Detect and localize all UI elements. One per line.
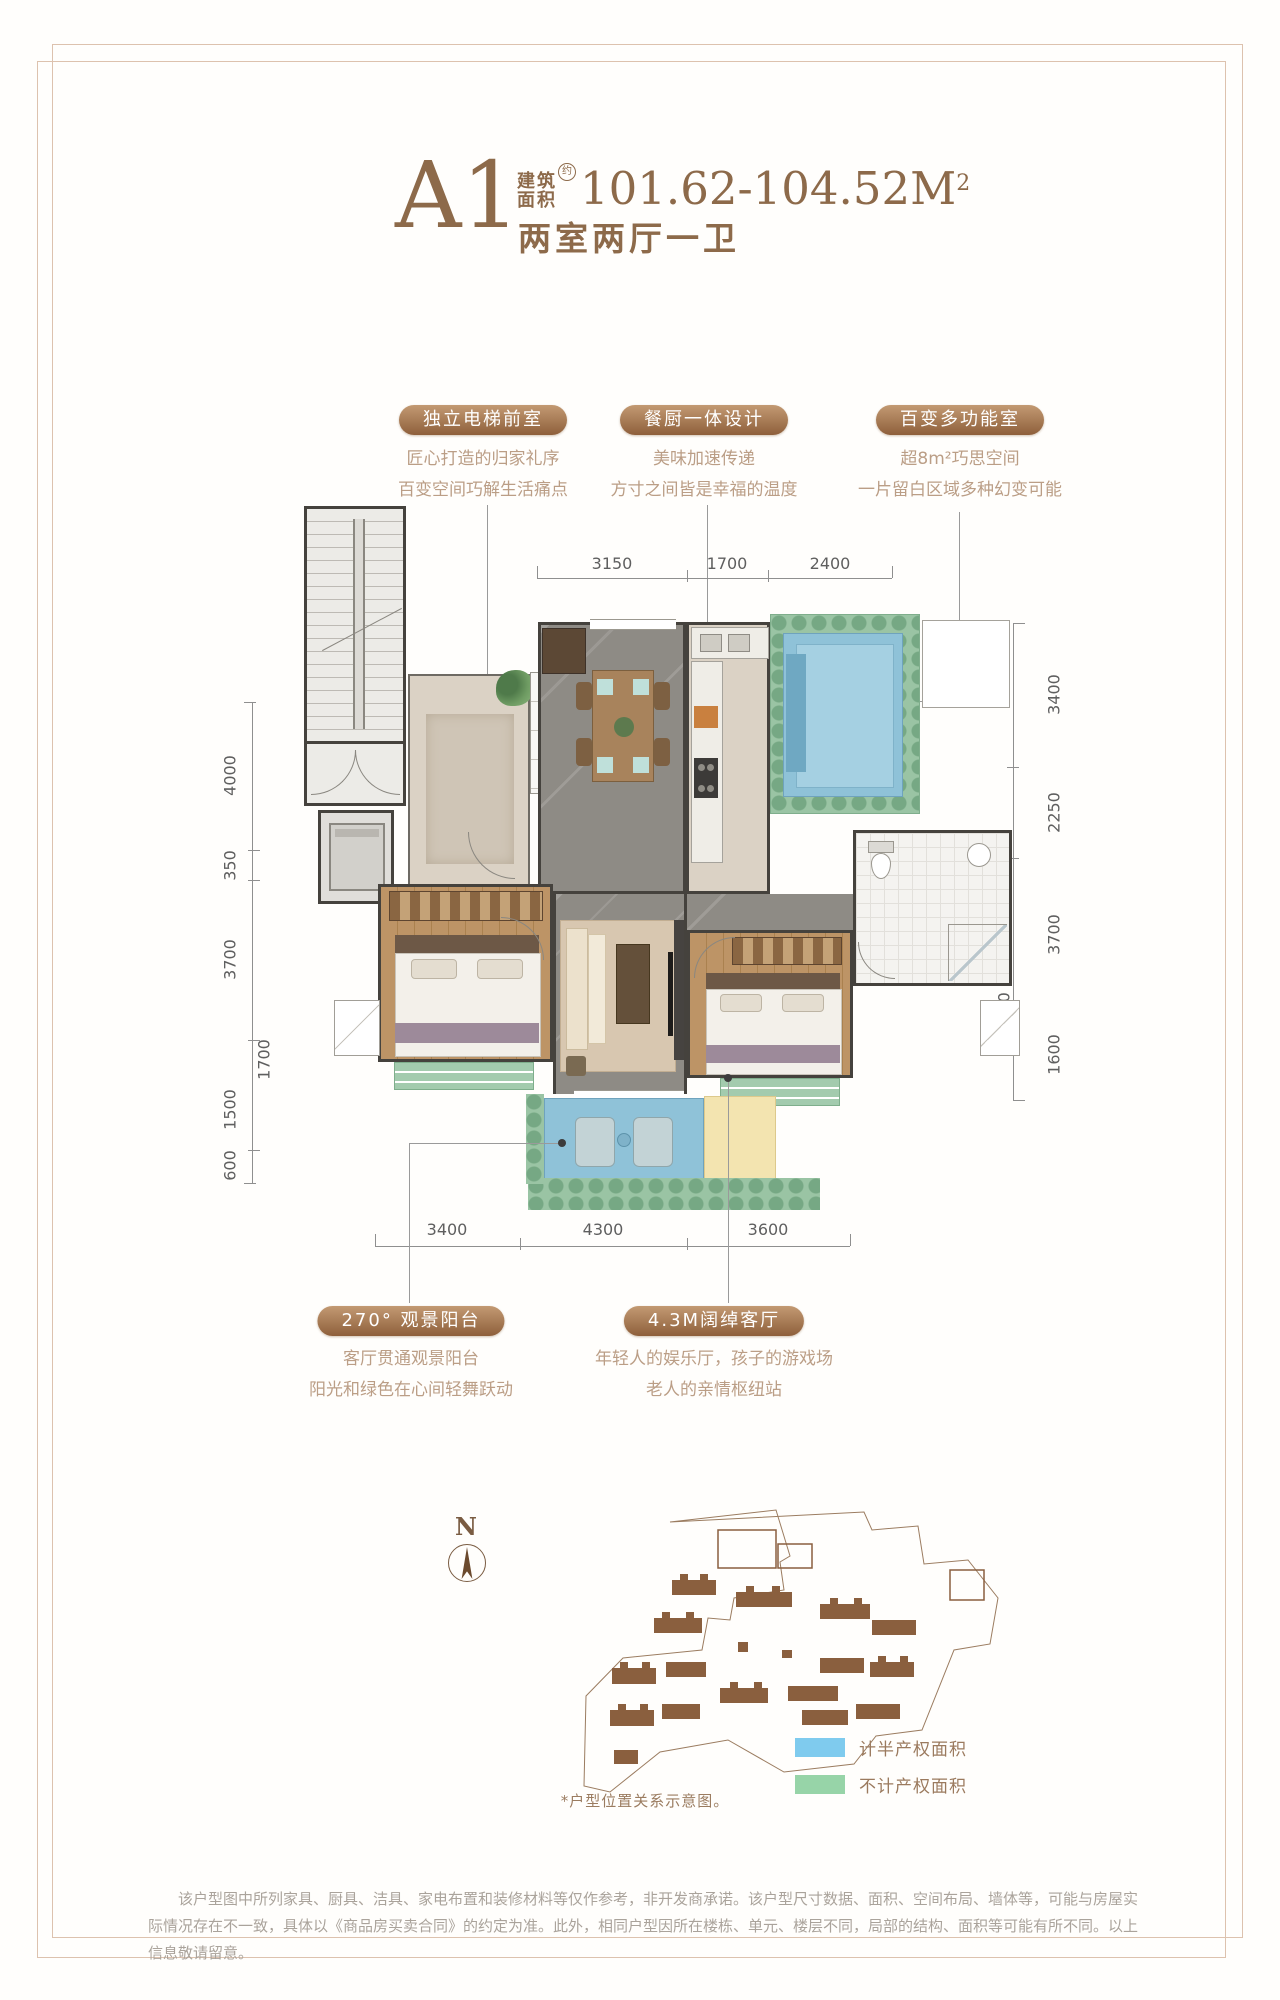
equipment-platform xyxy=(922,620,1010,708)
side-bay-window-left xyxy=(334,1000,380,1056)
floor-plan xyxy=(290,500,1070,1220)
approx-badge: 约 xyxy=(558,163,576,181)
bed-runner xyxy=(706,1045,840,1063)
balcony-plants-left xyxy=(526,1094,544,1184)
dim-tick xyxy=(248,880,260,881)
sofa-cushions xyxy=(588,934,606,1044)
elevator-lobby xyxy=(304,744,406,806)
dim-left-2: 350 xyxy=(221,834,240,898)
dim-left-4: 1500 xyxy=(221,1078,240,1142)
bay-diagonal xyxy=(335,1001,379,1055)
pillow xyxy=(782,994,824,1012)
leader-dot-livingroom xyxy=(724,1074,732,1082)
callout-living-room-desc: 年轻人的娱乐厅，孩子的游戏场 老人的亲情枢纽站 xyxy=(554,1344,874,1406)
bedroom-2 xyxy=(687,930,853,1078)
multifunction-mat xyxy=(796,644,894,788)
burner xyxy=(698,764,705,771)
dim-bottom-2: 4300 xyxy=(583,1220,624,1239)
bedroom1-bay-window xyxy=(394,1062,534,1090)
dim-tick xyxy=(520,1238,521,1250)
bathroom-sink xyxy=(967,843,991,867)
stair-rail xyxy=(353,519,365,729)
placemat xyxy=(633,679,649,695)
site-amenity-buildings xyxy=(718,1530,984,1600)
dining-table xyxy=(592,670,654,782)
legend-row-half-property: 计半产权面积 xyxy=(795,1735,967,1760)
multifunction-cabinet xyxy=(786,654,806,772)
poster-canvas: A1 建筑 面积 约 101.62-104.52M2 两室两厅一卫 独立电梯前室… xyxy=(0,0,1280,2000)
layout-text: 两室两厅一卫 xyxy=(518,212,740,260)
legend-label: 计半产权面积 xyxy=(859,1735,967,1760)
placemat xyxy=(633,757,649,773)
balcony-chair xyxy=(633,1117,673,1167)
dining-chair xyxy=(654,738,670,766)
dim-tick xyxy=(244,702,256,703)
side-bay-window-right xyxy=(980,1000,1020,1056)
tv-screen xyxy=(668,952,673,1036)
site-plan xyxy=(520,1500,1040,1810)
dim-chain-left xyxy=(252,702,253,1183)
dim-tick xyxy=(248,1150,260,1151)
kitchen-counter xyxy=(691,661,723,863)
dim-tick xyxy=(244,1183,256,1184)
bed-runner xyxy=(395,1023,539,1043)
dim-left-3: 3700 xyxy=(221,928,240,992)
elevator-door xyxy=(335,829,379,837)
dim-tick xyxy=(850,1234,851,1246)
lobby-door-arc-left xyxy=(311,750,356,795)
pillow xyxy=(477,959,523,979)
area-value: 101.62-104.52M2 xyxy=(580,166,970,211)
leader-dot-balcony xyxy=(558,1139,566,1147)
dining-window xyxy=(590,619,676,630)
unit-name: A1 xyxy=(395,150,520,242)
callout-balcony: 270° 观景阳台 xyxy=(317,1306,504,1336)
compass-needle xyxy=(458,1547,476,1579)
callout-kitchen-dining: 餐厨一体设计 xyxy=(620,405,788,435)
balcony xyxy=(544,1098,704,1182)
wardrobe xyxy=(732,937,842,965)
legend-row-no-property: 不计产权面积 xyxy=(795,1772,967,1797)
pillow xyxy=(411,959,457,979)
bedroom2-door-arc xyxy=(694,937,735,978)
dim-chain-bottom xyxy=(375,1246,850,1247)
burner xyxy=(707,764,714,771)
area-prefix-line2: 面积 xyxy=(517,191,557,210)
lobby-door-arc-right xyxy=(355,750,400,795)
plant-icon xyxy=(496,670,534,706)
sink-basin xyxy=(728,634,750,652)
callout-multifunction-desc: 超8m²巧思空间 一片留白区域多种幻变可能 xyxy=(800,444,1120,506)
kitchen-appliance xyxy=(694,706,718,728)
bedroom1-door-arc xyxy=(501,917,544,960)
dim-bottom-1: 3400 xyxy=(427,1220,468,1239)
bay-glazing xyxy=(395,1063,533,1089)
balcony-table xyxy=(617,1133,631,1147)
dim-left-inner: 1700 xyxy=(255,1028,274,1092)
toilet-tank xyxy=(868,841,894,853)
sofa xyxy=(566,928,588,1050)
site-plan-caption: *户型位置关系示意图。 xyxy=(561,1790,730,1811)
disclaimer-text: 该户型图中所列家具、厨具、洁具、家电布置和装修材料等仅作参考，非开发商承诺。该户… xyxy=(148,1886,1138,1967)
coffee-table xyxy=(616,944,650,1024)
legend-swatch-green xyxy=(795,1775,845,1794)
table-centerpiece xyxy=(614,717,634,737)
entry-foyer xyxy=(408,674,530,894)
dim-left-1: 4000 xyxy=(221,744,240,808)
dim-tick xyxy=(248,850,260,851)
north-label: N xyxy=(455,1512,477,1541)
shower-area xyxy=(948,924,1007,981)
dining-chair xyxy=(576,738,592,766)
elevator-cab xyxy=(329,823,385,891)
burner xyxy=(707,785,714,792)
area-prefix: 建筑 面积 xyxy=(517,172,557,210)
foyer-door-arc xyxy=(468,832,515,879)
area-prefix-line1: 建筑 xyxy=(517,172,557,191)
leader-line-balcony-h xyxy=(409,1143,564,1144)
callout-living-room: 4.3M阔绰客厅 xyxy=(624,1306,804,1336)
stove xyxy=(694,758,718,798)
placemat xyxy=(597,757,613,773)
tv-cabinet xyxy=(674,920,684,1060)
balcony-plants-bottom xyxy=(528,1178,820,1210)
burner xyxy=(698,785,705,792)
bathroom xyxy=(853,830,1012,986)
toilet xyxy=(871,853,891,879)
balcony-chair xyxy=(575,1117,615,1167)
bed xyxy=(706,973,840,1073)
callout-multifunction: 百变多功能室 xyxy=(876,405,1044,435)
dim-tick xyxy=(375,1234,376,1246)
stairwell xyxy=(304,506,406,744)
placemat xyxy=(597,679,613,695)
legend-swatch-blue xyxy=(795,1738,845,1757)
pillow xyxy=(720,994,762,1012)
side-table xyxy=(566,1056,586,1076)
dim-bottom-3: 3600 xyxy=(748,1220,789,1239)
callout-elevator-lobby: 独立电梯前室 xyxy=(399,405,567,435)
bay-diagonal xyxy=(981,1001,1019,1055)
dining-chair xyxy=(654,682,670,710)
dim-tick xyxy=(687,1238,688,1250)
dining-cabinet xyxy=(542,628,586,674)
kitchen-sink-counter xyxy=(691,627,769,659)
compass-icon xyxy=(448,1544,486,1582)
balcony-mat xyxy=(704,1096,776,1180)
bedroom-1 xyxy=(378,884,553,1062)
kitchen xyxy=(686,622,770,894)
multifunction-garden xyxy=(770,614,920,814)
leader-line-balcony-v xyxy=(409,1143,410,1303)
bathroom-door-arc xyxy=(858,942,895,979)
wardrobe xyxy=(389,891,543,921)
dim-left-5: 600 xyxy=(221,1134,240,1198)
callout-balcony-desc: 客厅贯通观景阳台 阳光和绿色在心间轻舞跃动 xyxy=(251,1344,571,1406)
legend-label: 不计产权面积 xyxy=(859,1772,967,1797)
dining-chair xyxy=(576,682,592,710)
sink-basin xyxy=(700,634,722,652)
area-sup: 2 xyxy=(956,171,970,196)
multifunction-room xyxy=(783,633,903,797)
leader-line-livingroom xyxy=(728,1078,729,1303)
